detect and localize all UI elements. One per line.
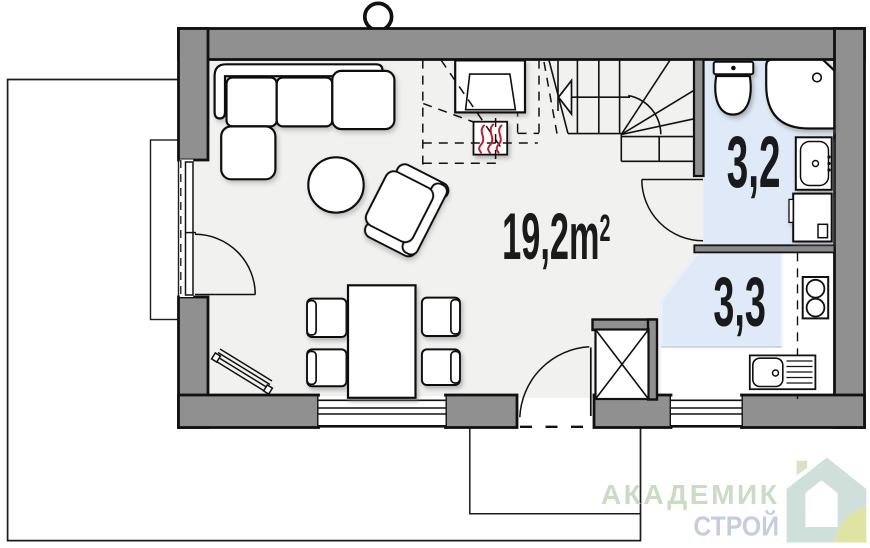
svg-text:3,2: 3,2 <box>727 122 781 203</box>
svg-text:СТРОЙ: СТРОЙ <box>693 510 779 542</box>
svg-text:3,3: 3,3 <box>713 262 766 340</box>
svg-text:19,2m2: 19,2m2 <box>502 200 610 274</box>
svg-text:АКАДЕМИК: АКАДЕМИК <box>601 479 780 510</box>
